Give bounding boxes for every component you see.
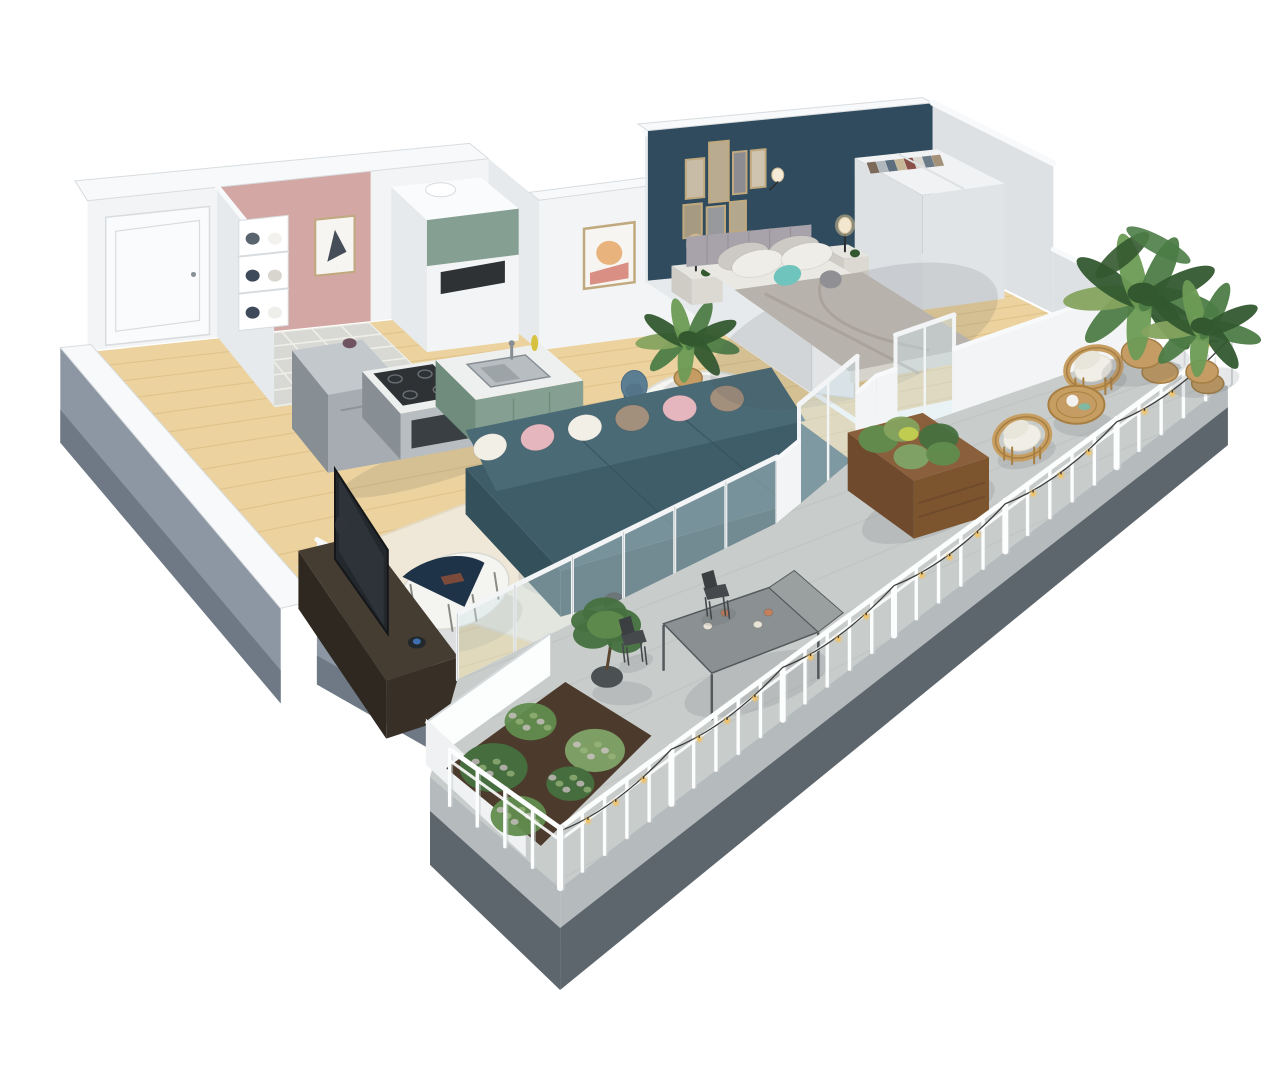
shrub-detail — [537, 719, 545, 725]
shrub-detail — [507, 771, 515, 777]
shrub-detail — [523, 725, 531, 731]
speaker — [335, 516, 347, 534]
stand-plant — [850, 249, 860, 257]
shrub-detail — [516, 719, 524, 725]
shrub-detail — [573, 741, 581, 747]
shrub-detail — [580, 747, 588, 753]
vent-cylinder — [426, 183, 456, 197]
bottle — [531, 335, 538, 351]
shrub-detail — [500, 765, 508, 771]
shrub-detail — [608, 753, 616, 759]
palm-core — [1191, 318, 1214, 334]
shrub-detail — [569, 775, 577, 781]
towel-roll — [268, 270, 282, 282]
knit-ball — [820, 270, 842, 288]
jar — [343, 338, 357, 348]
shrub-detail — [530, 713, 538, 719]
shrub — [505, 703, 557, 740]
tray — [1078, 403, 1090, 410]
shrub-detail — [576, 781, 584, 787]
candle — [753, 621, 762, 628]
planter-greens — [926, 442, 960, 466]
shrub-detail — [601, 747, 609, 753]
apartment-3d-render — [0, 0, 1280, 1087]
towel-roll — [268, 233, 282, 245]
dining-art — [584, 222, 635, 289]
shrub-detail — [583, 787, 591, 793]
shrub-detail — [562, 787, 570, 793]
shrub-detail — [511, 819, 519, 825]
bathroom-art — [315, 216, 354, 276]
gallery-frame — [751, 149, 766, 188]
shrub — [565, 729, 625, 772]
teapot — [1066, 395, 1078, 407]
floor-plan-canvas — [0, 0, 1280, 1087]
gallery-frame — [683, 203, 701, 238]
palm-core — [678, 331, 698, 345]
shrub-detail — [555, 781, 563, 787]
towel-roll — [246, 307, 260, 319]
bathroom-shelf — [239, 215, 288, 330]
shrub-detail — [548, 775, 556, 781]
towel-roll — [246, 270, 260, 282]
candle — [764, 609, 773, 616]
shrub — [460, 743, 528, 792]
art-sun — [596, 241, 622, 265]
shrub — [491, 796, 547, 836]
shrub-detail — [493, 759, 501, 765]
gallery-frame — [733, 151, 747, 194]
wall-sconce — [772, 168, 784, 182]
planter-greens — [893, 444, 929, 469]
door-handle — [191, 272, 196, 277]
nightstand-left-front — [692, 276, 723, 306]
shrub — [546, 766, 594, 801]
shrub-detail — [544, 725, 552, 731]
towel-roll — [268, 307, 282, 319]
gallery-frame — [686, 158, 704, 199]
gallery-frame — [709, 141, 729, 203]
shrub-detail — [509, 713, 517, 719]
shrub-detail — [587, 753, 595, 759]
kitchen-tall-cabinet — [391, 178, 518, 353]
entrance-door — [106, 206, 210, 345]
lamp-shade — [838, 217, 851, 233]
shrub-detail — [594, 741, 602, 747]
towel-roll — [246, 233, 260, 245]
faucet-head — [509, 340, 515, 346]
planter-flowers — [899, 427, 919, 441]
record-disc — [413, 638, 421, 644]
gallery-frame — [730, 201, 746, 233]
